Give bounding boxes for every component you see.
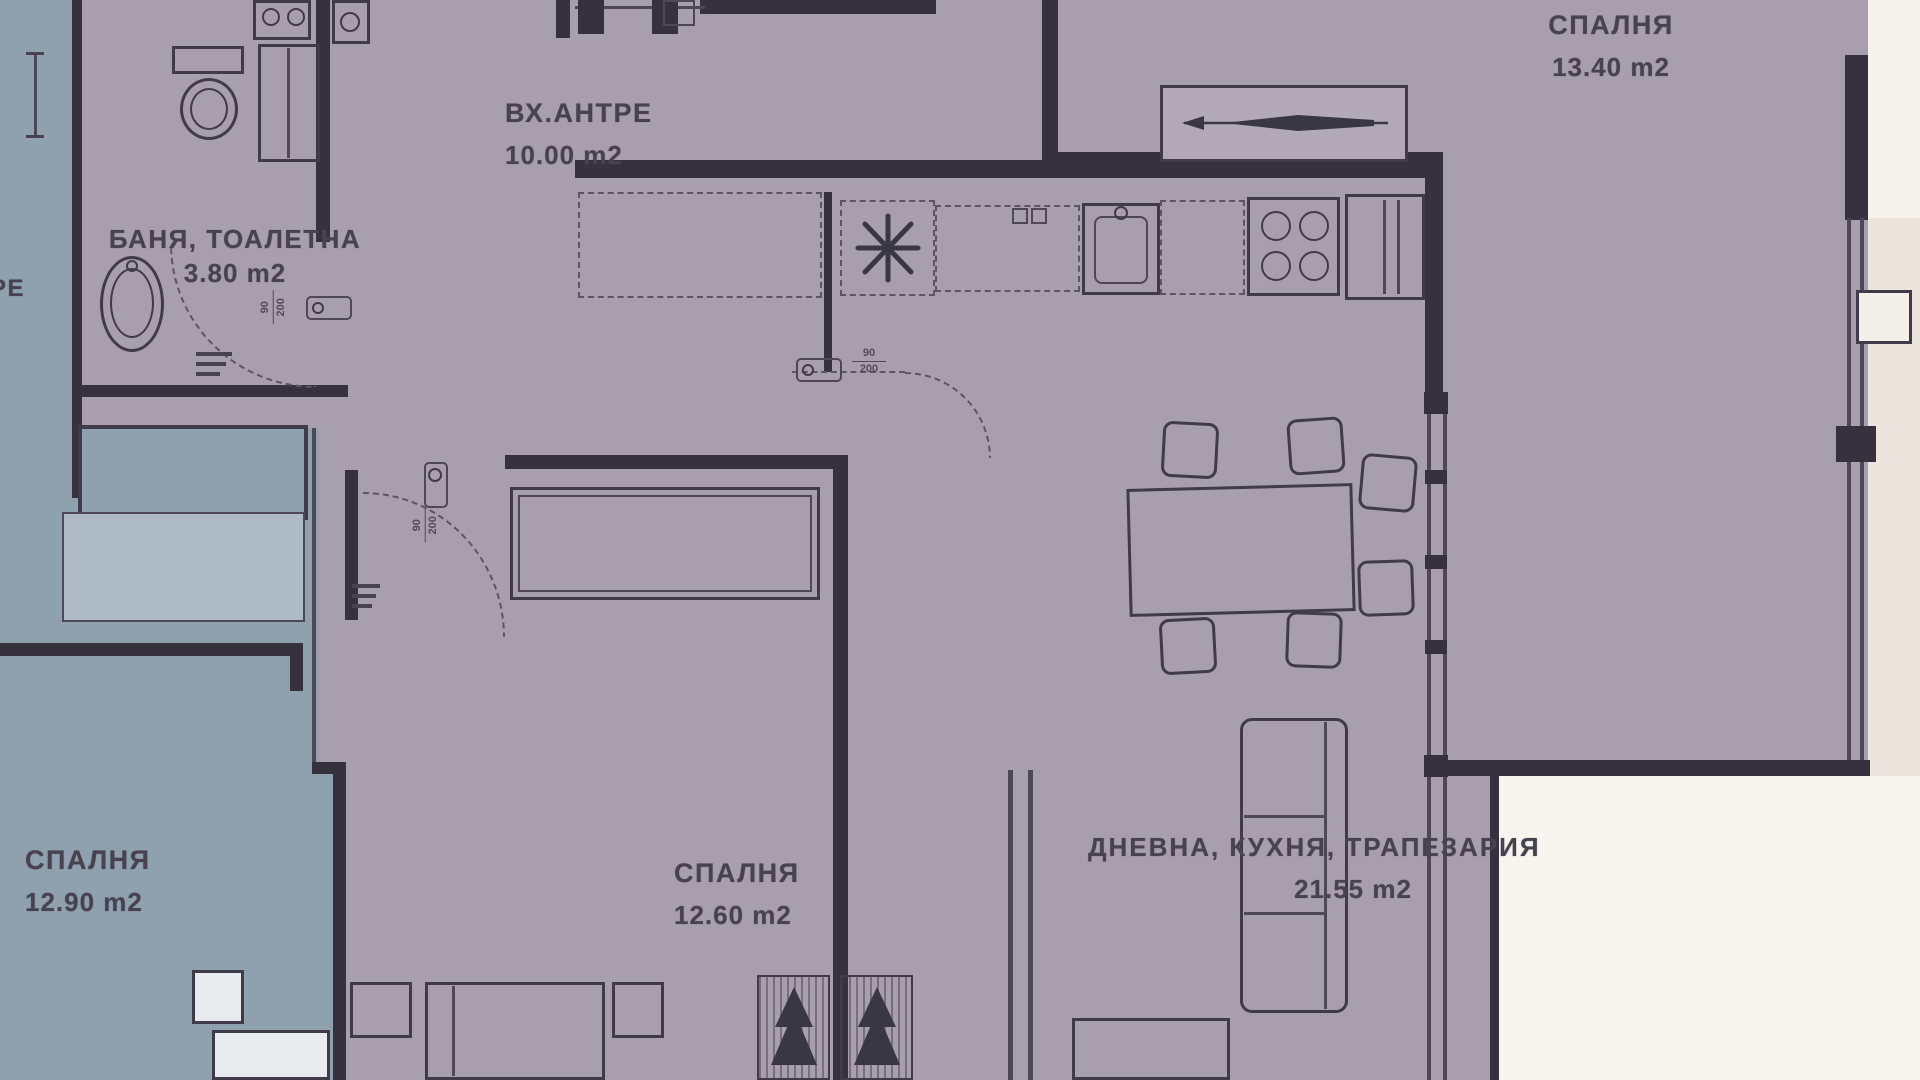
door-hinge-icon [312, 302, 324, 314]
wall-facade-right [1845, 55, 1868, 220]
window-mullion [1425, 640, 1447, 654]
dimension-ticks [196, 362, 226, 366]
kitchen-counter [578, 192, 822, 298]
window-line [1847, 218, 1851, 426]
toilet-bowl-inner [190, 88, 228, 130]
wall [290, 643, 303, 691]
wall [1425, 152, 1443, 392]
room-label-bedroom-center: СПАЛНЯ 12.60 m2 [674, 856, 800, 932]
room-label-entrance-hall: ВХ.АНТРЕ 10.00 m2 [505, 96, 653, 172]
partial-neighbor-label: РЕ [0, 272, 25, 306]
window-line [1443, 392, 1447, 1080]
cabinet-divider [287, 48, 290, 158]
wall-corner [1836, 426, 1876, 462]
room-name: СПАЛНЯ [25, 843, 151, 877]
wall [556, 0, 570, 38]
room-area: 10.00 m2 [505, 138, 653, 172]
burner-icon [1299, 251, 1329, 281]
door-size-note: 90 200 [260, 286, 287, 328]
dimension-ticks [26, 52, 44, 55]
wall-terrace-bottom [1425, 760, 1870, 776]
dimension-line [34, 52, 37, 138]
room-area: 13.40 m2 [1525, 50, 1697, 84]
bed-pillow-line [452, 986, 455, 1076]
burner-icon [1299, 211, 1329, 241]
wall-neighbor-boundary [312, 428, 316, 770]
window-line [1427, 392, 1431, 1080]
room-label-living: ДНЕВНА, КУХНЯ, ТРАПЕЗАРИЯ 21.55 m2 [1088, 830, 1528, 906]
toilet-tank-icon [172, 46, 244, 74]
bed-direction-arrow-icon [1178, 112, 1394, 134]
chair [1357, 559, 1415, 617]
dimension-ticks [352, 594, 376, 598]
sofa-cushion-line [1244, 912, 1324, 915]
door-height-value: 200 [426, 516, 438, 534]
column-line [1028, 770, 1033, 1080]
plant-icon [848, 983, 906, 1073]
wall-bedroom-top [505, 455, 848, 469]
door-hinge-icon [802, 364, 814, 376]
burner-icon [1261, 211, 1291, 241]
window-mullion [1424, 392, 1448, 414]
door-height-value: 200 [860, 363, 878, 375]
nightstand [612, 982, 664, 1038]
neighbor-wardrobe [78, 425, 308, 520]
room-name: СПАЛНЯ [674, 856, 800, 890]
tv-bench [1072, 1018, 1230, 1080]
wall-outer-bottom-right [1490, 776, 1499, 1080]
small-appliance-icon [1031, 208, 1047, 224]
washer-knob-icon [262, 8, 280, 26]
burner-icon [1261, 251, 1291, 281]
washer-knob-icon [287, 8, 305, 26]
kitchen-sink-basin [1094, 216, 1148, 284]
nightstand [350, 982, 412, 1038]
room-name: СПАЛНЯ [1525, 8, 1697, 42]
floor-plan: 90 200 90 20 [0, 0, 1920, 1080]
boiler-knob-icon [340, 12, 360, 32]
dimension-ticks [196, 352, 232, 356]
room-label-bedroom-top-right: СПАЛНЯ 13.40 m2 [1525, 8, 1697, 84]
column-line [1008, 770, 1013, 1080]
doorbell-panel [663, 0, 695, 26]
room-label-bathroom: БАНЯ, ТОАЛЕТНА 3.80 m2 [95, 222, 375, 290]
nightstand [192, 970, 244, 1024]
wall-counter-end [824, 192, 832, 372]
door-size-note: 90 200 [412, 504, 439, 546]
dimension-ticks [26, 135, 44, 138]
chair [1358, 453, 1419, 514]
wall [72, 0, 82, 498]
dimension-ticks [196, 372, 220, 376]
chair [1286, 416, 1346, 476]
wall [700, 0, 936, 14]
kitchen-counter [935, 205, 1080, 292]
door-arc [905, 372, 991, 458]
vent-star-icon [852, 210, 924, 286]
neighbor-cabinet [62, 512, 305, 622]
small-appliance-icon [1012, 208, 1028, 224]
door-size-note: 90 200 [848, 348, 890, 375]
entrance-door-leaf [578, 0, 604, 34]
room-label-bedroom-left: СПАЛНЯ 12.90 m2 [25, 843, 151, 919]
door-width-value: 90 [259, 301, 271, 313]
room-name: БАНЯ, ТОАЛЕТНА [95, 222, 375, 256]
tap-icon [1114, 206, 1128, 220]
chair [1285, 611, 1343, 669]
facade-column [1856, 290, 1912, 344]
window-mullion [1425, 470, 1447, 484]
window-line [1860, 462, 1864, 762]
wall-neighbor-mid [0, 643, 302, 656]
door-width-value: 90 [863, 347, 875, 359]
dining-table [1126, 483, 1355, 617]
chair [1159, 617, 1218, 676]
room-area: 12.90 m2 [25, 885, 151, 919]
room-area: 21.55 m2 [1133, 872, 1573, 906]
fridge-divider [1383, 200, 1386, 294]
fridge-divider [1397, 200, 1400, 294]
stove-icon [1247, 197, 1340, 296]
room-name-partial: РЕ [0, 272, 25, 306]
kitchen-counter [1160, 200, 1245, 295]
plant-icon [765, 983, 823, 1073]
wardrobe-inner [518, 495, 812, 592]
room-area: 3.80 m2 [95, 256, 375, 290]
door-hinge-icon [428, 468, 442, 482]
wall-neighbor-lower [333, 770, 346, 1080]
room-name: ДНЕВНА, КУХНЯ, ТРАПЕЗАРИЯ [1088, 830, 1528, 864]
bed [212, 1030, 330, 1080]
door-height-value: 200 [274, 298, 286, 316]
chair [1161, 421, 1220, 480]
room-area: 12.60 m2 [674, 898, 800, 932]
sofa-cushion-line [1244, 815, 1324, 818]
door-width-value: 90 [411, 519, 423, 531]
dimension-ticks [352, 604, 372, 608]
room-name: ВХ.АНТРЕ [505, 96, 653, 130]
dimension-ticks [352, 584, 380, 588]
outside-top-right [1868, 0, 1920, 218]
outside-bottom-right [1497, 776, 1920, 1080]
window-line [1847, 462, 1851, 762]
window-mullion [1425, 555, 1447, 569]
